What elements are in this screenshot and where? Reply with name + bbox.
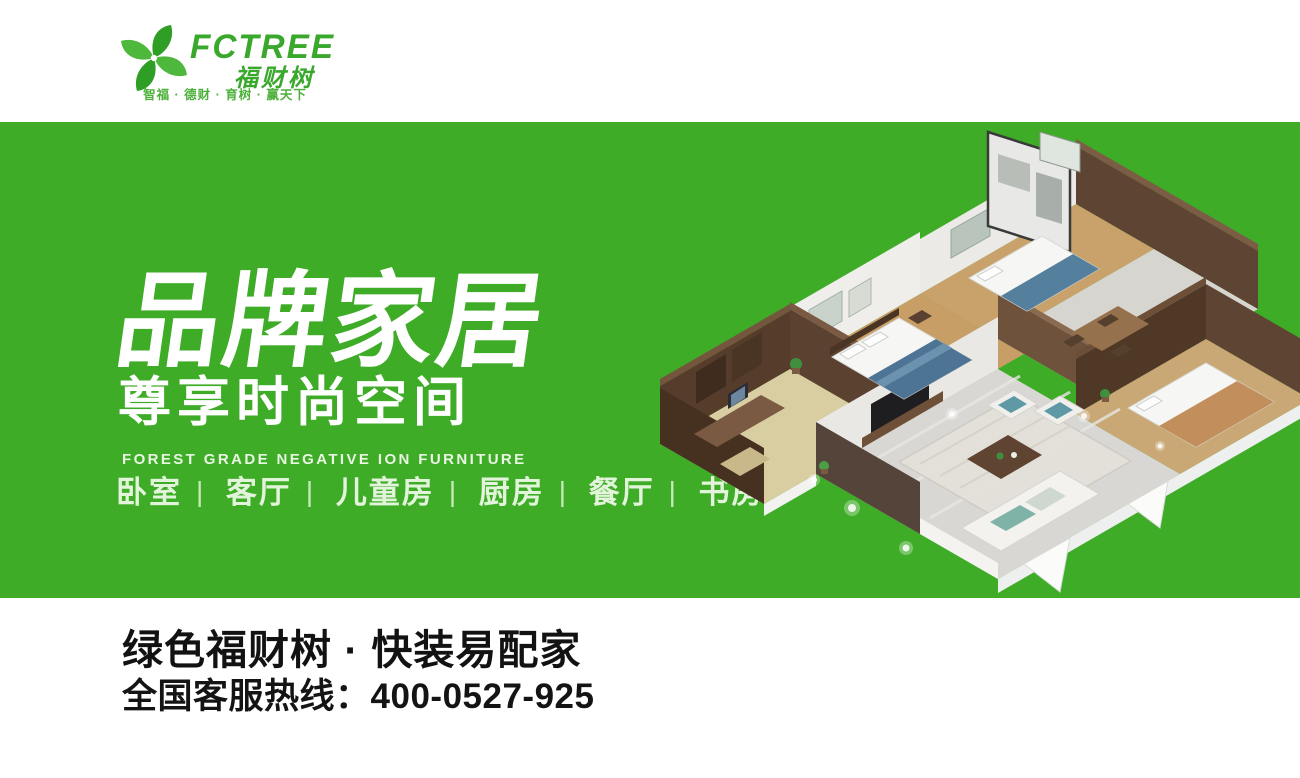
hotline-label: 全国客服热线： [122, 677, 371, 716]
room-category: 客厅 [226, 475, 292, 510]
room-category: 卧室 [116, 475, 182, 510]
hotline-number: 400-0527-925 [371, 677, 595, 716]
room-category: 儿童房 [336, 475, 435, 510]
apartment-3d-render [600, 114, 1300, 624]
hero-english-caption: FOREST GRADE NEGATIVE ION FURNITURE [122, 451, 527, 468]
hero-title: 品牌家居 [110, 270, 553, 374]
list-separator: | [449, 476, 456, 507]
brand-tagline: 智福 · 德财 · 育树 · 赢天下 [120, 84, 330, 103]
footer-hotline: 全国客服热线：400-0527-925 [122, 678, 594, 717]
hero-subtitle: 尊享时尚空间 [118, 376, 472, 429]
list-separator: | [559, 476, 566, 507]
room-category: 厨房 [479, 475, 545, 510]
footer-slogan: 绿色福财树 · 快装易配家 [122, 628, 581, 673]
list-separator: | [196, 476, 203, 507]
list-separator: | [306, 476, 313, 507]
ad-banner: { "header": { "brand": "FCTREE", "brand_… [0, 0, 1300, 778]
brand-logo: FCTREE 福财树 智福 · 德财 · 育树 · 赢天下 [118, 16, 348, 108]
